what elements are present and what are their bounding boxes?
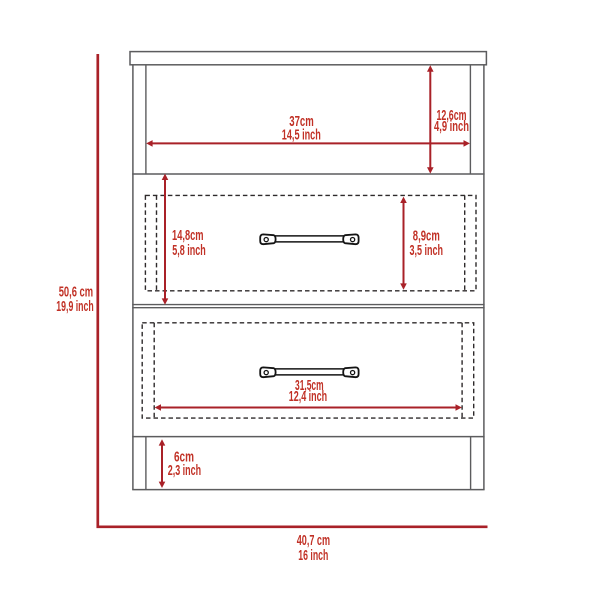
svg-text:16 inch: 16 inch: [298, 547, 328, 564]
svg-text:19,9 inch: 19,9 inch: [56, 298, 93, 315]
svg-text:2,3 inch: 2,3 inch: [168, 462, 201, 479]
svg-text:4,9 inch: 4,9 inch: [434, 118, 469, 135]
svg-text:12,4 inch: 12,4 inch: [289, 388, 327, 405]
svg-text:14,5 inch: 14,5 inch: [282, 127, 321, 144]
svg-text:3,5 inch: 3,5 inch: [410, 242, 444, 259]
svg-text:5,8 inch: 5,8 inch: [172, 242, 206, 259]
